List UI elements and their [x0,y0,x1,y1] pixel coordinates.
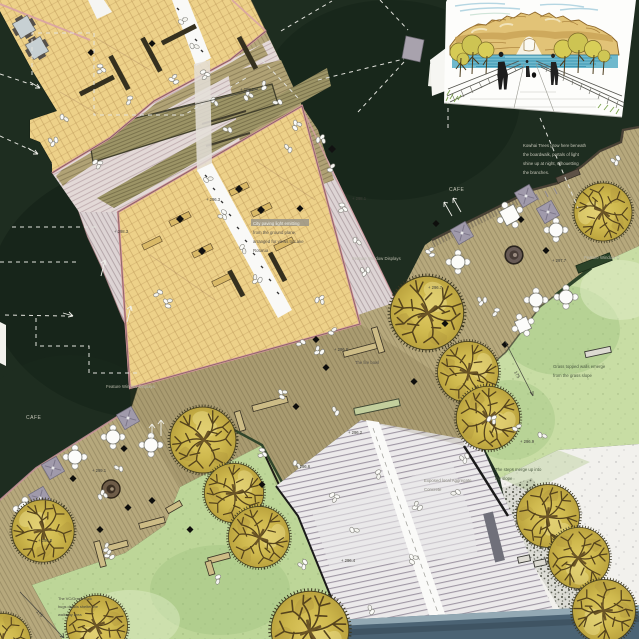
svg-text:The fire bowl: The fire bowl [355,360,379,365]
svg-text:+ 296.6: + 296.6 [296,464,311,469]
svg-text:shine up at night, silhouettin: shine up at night, silhouetting [523,161,579,166]
svg-text:+ 296.2: + 296.2 [348,430,363,435]
svg-text:CAFE: CAFE [26,415,42,421]
svg-text:+ 296.3: + 296.3 [206,197,221,202]
svg-text:Exposed local Aggregate: Exposed local Aggregate [424,478,472,483]
svg-text:Kowhai Trees grow here beneath: Kowhai Trees grow here beneath [523,143,587,148]
svg-text:from the ground plane,: from the ground plane, [253,230,296,235]
svg-text:+ 296.9: + 296.9 [520,439,535,444]
svg-text:arranged for views to Lake: arranged for views to Lake [253,239,304,244]
svg-text:+ 296.7: + 296.7 [428,285,443,290]
svg-text:the slope: the slope [495,476,513,481]
svg-text:from the grass slope: from the grass slope [553,373,593,378]
svg-text:+ 297.7: + 297.7 [552,258,567,263]
svg-text:+ 296.8: + 296.8 [334,347,349,352]
svg-text:+ 296.4: + 296.4 [341,558,356,563]
svg-text:Feature Window Displays: Feature Window Displays [352,256,401,261]
svg-text:The steps merge up into: The steps merge up into [495,467,542,472]
svg-text:+ 296.0: + 296.0 [38,538,53,543]
svg-text:the branches.: the branches. [523,170,549,175]
svg-text:Feature Window D: Feature Window D [584,255,620,260]
svg-text:Concrete: Concrete [424,487,442,492]
svg-text:+ 298.1: + 298.1 [352,196,367,201]
svg-text:The VC/Green walk: The VC/Green walk [58,596,92,601]
svg-text:Feature Window Displays: Feature Window Displays [106,384,155,389]
svg-text:City paving light emitting: City paving light emitting [253,221,300,226]
svg-text:+ 298.3: + 298.3 [114,229,129,234]
svg-text:walkway area: walkway area [58,612,82,617]
svg-text:Grass topped walls emerge: Grass topped walls emerge [553,364,606,369]
svg-text:CAFE: CAFE [449,187,465,193]
svg-text:hugs details shelter the: hugs details shelter the [58,604,98,609]
svg-text:Rotorua: Rotorua [253,248,269,253]
svg-text:+ 299.1: + 299.1 [92,468,107,473]
svg-text:+ 298.7: + 298.7 [240,87,255,92]
svg-text:the boardwalk, portals of ligh: the boardwalk, portals of light [523,152,580,157]
